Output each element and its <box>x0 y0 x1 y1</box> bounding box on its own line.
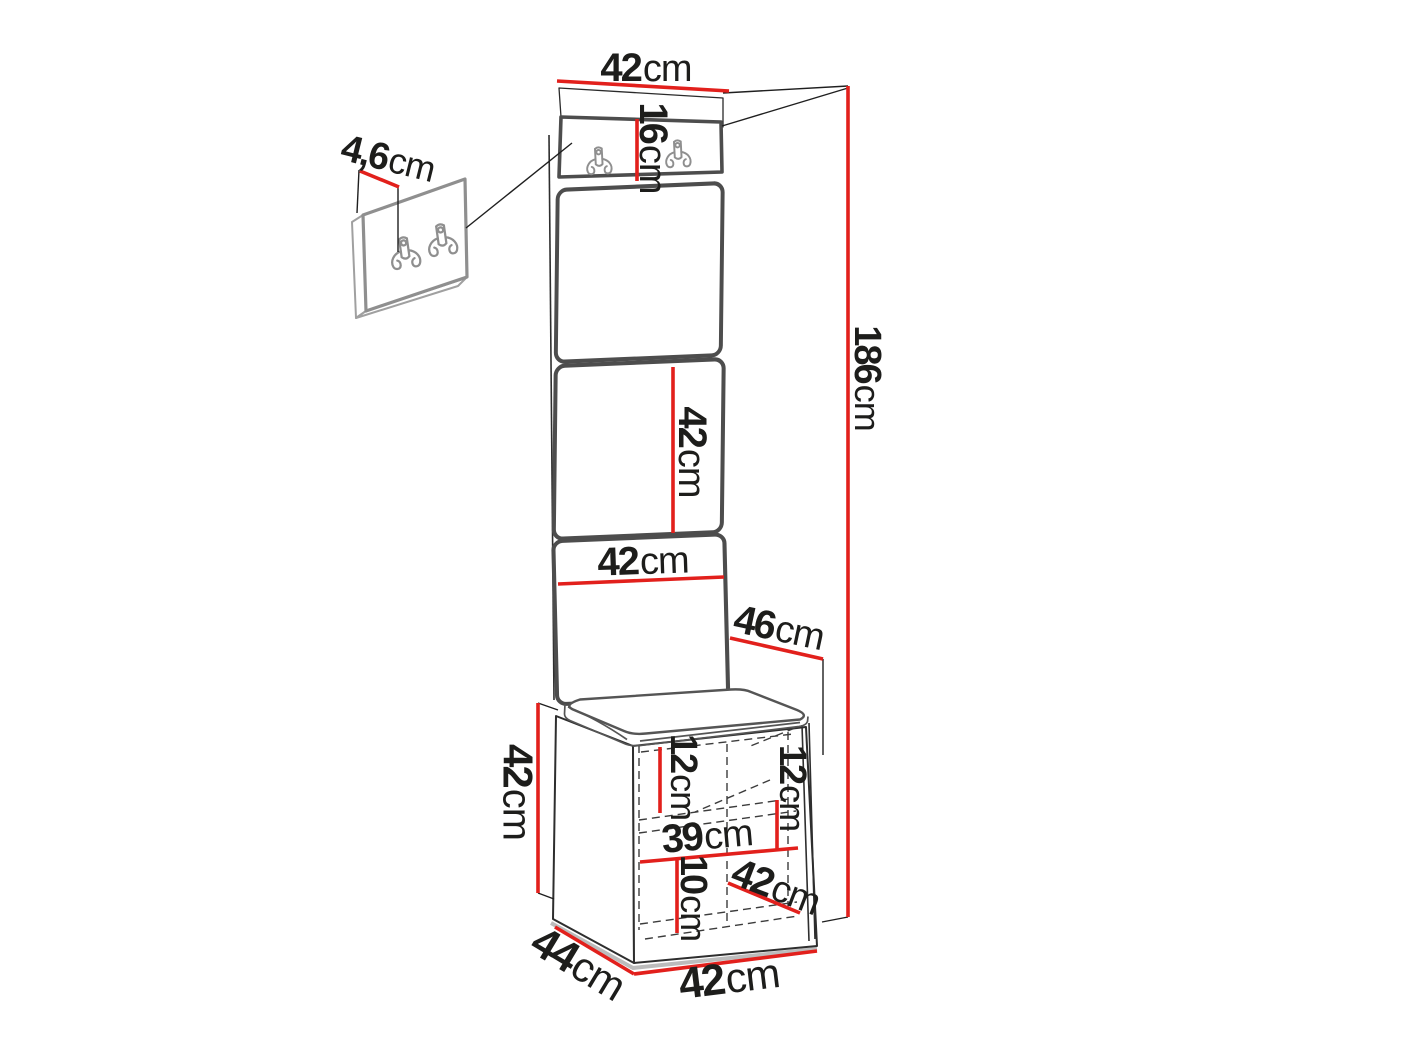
bench-left-side <box>553 716 634 963</box>
dim-label-panel-width: 42cm <box>597 539 689 582</box>
hook-panel-detail <box>352 179 467 318</box>
dim-label-top-width: 42cm <box>600 48 691 88</box>
dim-label-bottom-shelf-height: 10cm <box>674 855 712 941</box>
dim-label-shelf-left-height: 12cm <box>664 734 702 820</box>
dim-label-hook-strip-height: 16cm <box>633 102 673 193</box>
furniture-dimension-diagram: 42cm 4,6cm 16cm 186cm 42cm 42cm 46cm 42c… <box>0 0 1408 1056</box>
dim-label-total-height: 186cm <box>848 325 886 431</box>
dim-label-shelf-right-height: 12cm <box>773 745 811 831</box>
dim-label-panel-segment-height: 42cm <box>672 406 712 497</box>
upholstered-panel-segment-1 <box>556 183 723 362</box>
dim-label-bench-height: 42cm <box>496 744 539 840</box>
